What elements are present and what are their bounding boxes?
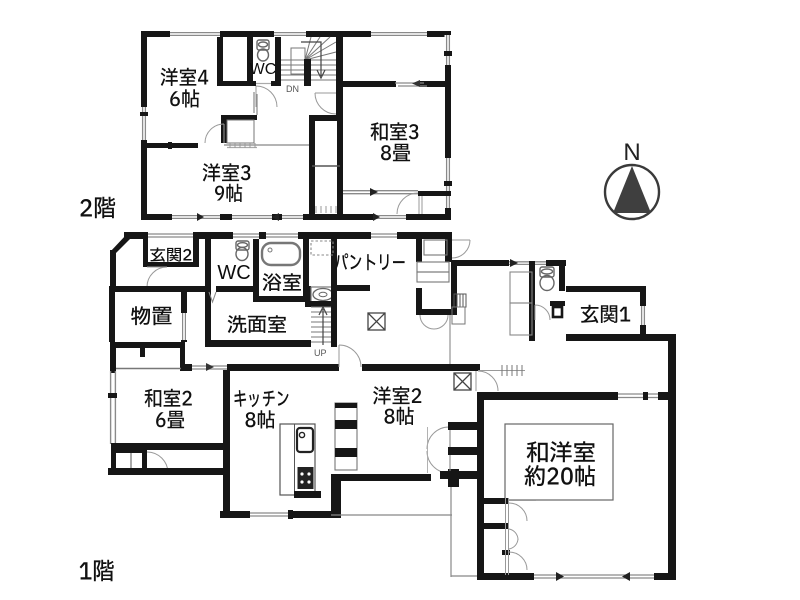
svg-text:DN: DN bbox=[286, 84, 299, 94]
svg-text:UP: UP bbox=[314, 348, 327, 358]
svg-text:N: N bbox=[623, 139, 640, 166]
svg-text:WC: WC bbox=[217, 262, 250, 284]
svg-text:WC: WC bbox=[250, 61, 277, 78]
